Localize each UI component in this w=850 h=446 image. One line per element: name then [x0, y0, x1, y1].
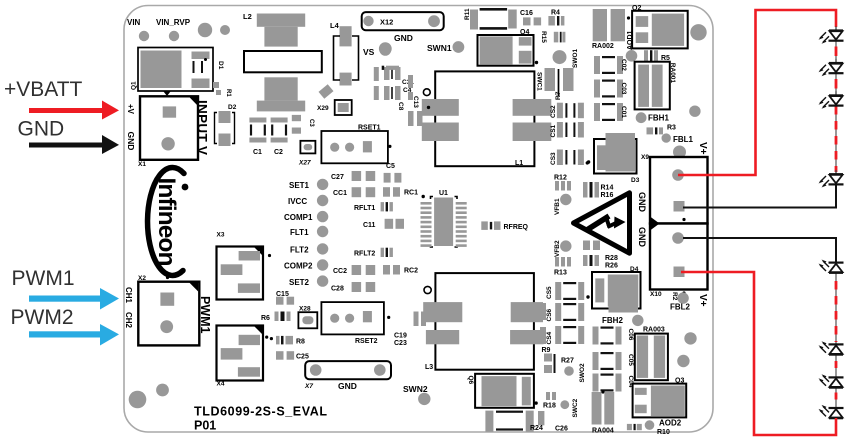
- svg-text:R15: R15: [540, 31, 547, 43]
- svg-text:R12: R12: [554, 175, 567, 182]
- svg-text:X3: X3: [217, 232, 225, 239]
- svg-text:R26: R26: [605, 262, 618, 269]
- svg-text:CS6: CS6: [546, 308, 553, 321]
- svg-text:RFLT1: RFLT1: [354, 205, 375, 212]
- svg-text:R3: R3: [667, 125, 676, 132]
- svg-text:+VBATT: +VBATT: [4, 78, 83, 101]
- svg-text:C16: C16: [520, 10, 533, 17]
- svg-text:X9: X9: [641, 154, 649, 161]
- svg-text:R10: R10: [657, 429, 670, 436]
- svg-text:Q6: Q6: [467, 376, 474, 385]
- svg-text:Infineon: Infineon: [153, 178, 180, 266]
- svg-text:R8: R8: [296, 339, 305, 346]
- svg-text:RC1: RC1: [404, 190, 418, 197]
- svg-text:C11: C11: [363, 222, 376, 229]
- svg-text:R11: R11: [464, 8, 471, 20]
- svg-text:C1: C1: [253, 149, 262, 156]
- svg-text:+V: +V: [126, 104, 135, 115]
- svg-text:Q1: Q1: [131, 81, 138, 90]
- svg-text:VS: VS: [363, 47, 375, 57]
- svg-text:R6: R6: [261, 315, 270, 322]
- svg-text:R9: R9: [542, 347, 551, 354]
- svg-text:C13: C13: [412, 96, 419, 108]
- svg-text:CS1: CS1: [550, 124, 557, 137]
- svg-text:R4: R4: [551, 10, 560, 17]
- svg-text:IVCC: IVCC: [288, 197, 307, 206]
- svg-text:SWN1: SWN1: [427, 43, 452, 53]
- svg-text:C2: C2: [274, 149, 283, 156]
- svg-text:C5: C5: [386, 163, 395, 170]
- svg-text:R14: R14: [601, 185, 614, 192]
- svg-text:C27: C27: [331, 174, 344, 181]
- svg-text:C8: C8: [397, 102, 404, 111]
- svg-text:PWM2: PWM2: [11, 306, 74, 329]
- svg-text:GND: GND: [338, 381, 357, 391]
- svg-text:RA001: RA001: [669, 63, 676, 84]
- svg-text:X7: X7: [304, 383, 313, 390]
- svg-text:RFREQ: RFREQ: [504, 224, 529, 231]
- svg-text:SET2: SET2: [289, 278, 310, 287]
- svg-text:SET1: SET1: [289, 181, 310, 190]
- svg-text:SWO1: SWO1: [572, 48, 579, 68]
- svg-text:CS4: CS4: [546, 331, 553, 344]
- svg-text:AOD2: AOD2: [659, 419, 682, 428]
- svg-text:FBL1: FBL1: [673, 135, 694, 144]
- svg-text:GND: GND: [126, 132, 136, 151]
- svg-text:C23: C23: [394, 340, 407, 347]
- svg-text:FBL2: FBL2: [670, 303, 691, 312]
- svg-text:C02: C02: [620, 59, 627, 71]
- svg-text:R13: R13: [554, 270, 567, 277]
- svg-text:FLT1: FLT1: [290, 228, 309, 237]
- svg-text:RA003: RA003: [643, 327, 665, 334]
- svg-text:X10: X10: [650, 291, 662, 298]
- svg-text:L4: L4: [330, 21, 340, 30]
- svg-text:C03: C03: [620, 83, 627, 95]
- svg-text:CH2: CH2: [124, 312, 133, 329]
- svg-text:GND: GND: [637, 227, 647, 248]
- svg-text:CS3: CS3: [550, 152, 557, 165]
- svg-text:D1: D1: [217, 61, 224, 70]
- svg-text:D3: D3: [631, 177, 640, 184]
- svg-text:SWO2: SWO2: [579, 363, 586, 383]
- svg-text:R18: R18: [543, 403, 556, 410]
- svg-text:RA002: RA002: [592, 43, 614, 50]
- svg-text:VFB1: VFB1: [554, 198, 561, 215]
- svg-text:C06: C06: [627, 329, 634, 341]
- svg-text:VIN: VIN: [127, 18, 141, 27]
- svg-text:L1: L1: [515, 160, 523, 167]
- svg-text:V+: V+: [697, 294, 708, 307]
- svg-text:R7: R7: [555, 91, 562, 100]
- svg-text:R28: R28: [605, 255, 618, 262]
- svg-text:COMP2: COMP2: [284, 262, 313, 271]
- svg-text:CC2: CC2: [333, 268, 347, 275]
- svg-text:R1: R1: [225, 89, 231, 97]
- svg-text:CH1: CH1: [124, 287, 133, 304]
- svg-text:FLT2: FLT2: [290, 246, 309, 255]
- svg-text:RFLT2: RFLT2: [354, 251, 375, 258]
- svg-text:FBH1: FBH1: [648, 114, 669, 123]
- svg-text:GND: GND: [637, 192, 647, 213]
- svg-text:PWM1: PWM1: [12, 267, 75, 290]
- svg-text:V+: V+: [697, 142, 708, 155]
- svg-text:C19: C19: [394, 333, 407, 340]
- svg-text:FBH2: FBH2: [602, 316, 623, 325]
- svg-text:SWC1: SWC1: [536, 72, 543, 91]
- svg-text:PWM1: PWM1: [198, 296, 212, 334]
- svg-text:RA004: RA004: [592, 428, 614, 435]
- svg-text:CC1: CC1: [333, 190, 347, 197]
- svg-text:X4: X4: [217, 381, 225, 388]
- svg-text:INPUT V: INPUT V: [195, 100, 210, 155]
- svg-text:RSET1: RSET1: [358, 125, 381, 132]
- svg-text:X12: X12: [380, 18, 393, 27]
- svg-text:COMP1: COMP1: [284, 213, 313, 222]
- svg-text:R27: R27: [561, 358, 574, 365]
- svg-text:CS2: CS2: [550, 105, 557, 118]
- svg-text:U1: U1: [439, 190, 448, 197]
- svg-text:L2: L2: [243, 12, 252, 21]
- svg-text:TLD6099-2S-S_EVAL: TLD6099-2S-S_EVAL: [194, 405, 328, 419]
- svg-text:C28: C28: [331, 286, 344, 293]
- svg-text:RSET2: RSET2: [355, 338, 378, 345]
- svg-text:GND: GND: [18, 118, 65, 141]
- svg-text:R2: R2: [671, 292, 678, 301]
- svg-text:X1: X1: [138, 161, 146, 168]
- svg-text:C26: C26: [555, 426, 568, 433]
- svg-text:C25: C25: [296, 354, 309, 361]
- svg-text:R24: R24: [530, 425, 543, 432]
- svg-text:GND: GND: [394, 33, 413, 43]
- svg-text:VIN_RVP: VIN_RVP: [156, 18, 191, 27]
- svg-text:C01: C01: [620, 106, 627, 118]
- svg-text:L3: L3: [425, 364, 433, 371]
- svg-text:VFB2: VFB2: [554, 240, 561, 257]
- svg-text:P01: P01: [194, 419, 216, 433]
- svg-text:X29: X29: [317, 105, 329, 112]
- svg-text:RC2: RC2: [404, 268, 418, 275]
- svg-text:SWC2: SWC2: [572, 398, 579, 417]
- svg-text:SWN2: SWN2: [403, 384, 428, 394]
- svg-text:D4: D4: [630, 266, 639, 273]
- svg-text:C3: C3: [308, 119, 314, 127]
- svg-text:CS5: CS5: [546, 286, 553, 299]
- svg-text:X27: X27: [298, 160, 311, 167]
- svg-text:R16: R16: [601, 192, 614, 199]
- svg-text:C05: C05: [627, 354, 634, 366]
- svg-text:D2: D2: [228, 104, 237, 111]
